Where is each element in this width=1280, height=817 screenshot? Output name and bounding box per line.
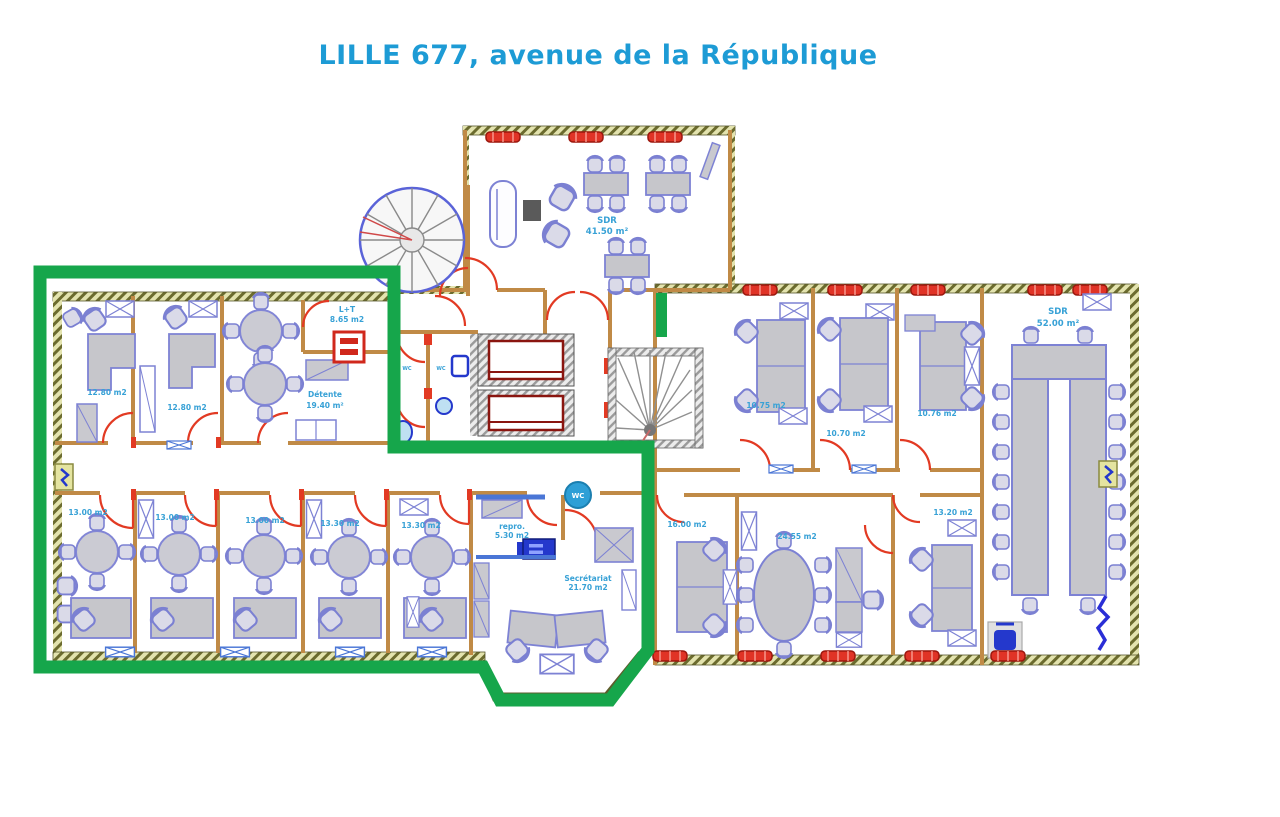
label-repro-name: repro. (499, 522, 525, 531)
floor-plan-page: LILLE 677, avenue de la République (0, 0, 1280, 817)
label-wc-2: WC (436, 366, 446, 372)
floor-plan: WC SDR 41.50 m² 12.80 m2 12.80 m2 Détent… (0, 0, 1280, 817)
emergency-exit-icon (55, 464, 73, 490)
label-repro-area: 5.30 m2 (495, 531, 529, 540)
coffee-table-icon (523, 200, 541, 221)
label-office-nw-2: 12.80 m2 (167, 403, 206, 412)
elevator-shafts-icon (470, 334, 574, 436)
label-office-ne-3: 10.76 m2 (917, 409, 956, 418)
page-title: LILLE 677, avenue de la République (0, 40, 1196, 71)
room-office-nw-1 (61, 301, 135, 442)
label-office-se-1: 16.00 m2 (667, 520, 706, 529)
sink-icon (452, 356, 468, 376)
conference-table-icon (1012, 345, 1106, 595)
label-office-sw-5: 13.30 m2 (401, 521, 440, 530)
room-office-sw-5 (394, 499, 470, 638)
label-meeting-north-area: 41.50 m² (586, 227, 629, 237)
label-office-ne-1: 10.75 m2 (746, 401, 785, 410)
room-office-nw-2 (140, 301, 217, 432)
label-secretariat-name: Secrétariat (564, 574, 612, 583)
label-wc-1: WC (402, 366, 412, 372)
room-meeting-north (486, 132, 720, 294)
label-office-sw-2: 13.00 m2 (155, 513, 194, 522)
label-meeting-north-name: SDR (597, 216, 617, 226)
label-meeting-east-area: 52.00 m² (1037, 319, 1080, 329)
label-office-nw-1: 12.80 m2 (87, 388, 126, 397)
label-secretariat-area: 21.70 m2 (568, 583, 607, 592)
oval-table-icon (754, 549, 814, 641)
wc-stamp-label: WC (572, 492, 585, 500)
room-office-ne-2 (814, 285, 894, 422)
room-office-se-3 (906, 520, 976, 646)
electrical-panel-icon (334, 332, 364, 362)
label-office-sw-4: 13.30 m2 (320, 519, 359, 528)
desk-icon (169, 334, 215, 388)
room-office-sw-1 (58, 514, 135, 638)
label-lounge-name: Détente (308, 390, 342, 399)
room-office-se-1 (677, 534, 737, 640)
label-office-sw-3: 13.00 m2 (245, 516, 284, 525)
emergency-exit-icon (1099, 461, 1117, 487)
room-meeting-east (988, 285, 1125, 658)
room-office-sw-3 (226, 518, 302, 638)
label-meeting-east-name: SDR (1048, 307, 1068, 317)
label-office-ne-2: 10.70 m2 (826, 429, 865, 438)
plant-icon (1098, 596, 1108, 650)
sofa-icon (490, 181, 516, 247)
label-lt-area: 8.65 m2 (330, 315, 364, 324)
flipchart-icon (700, 143, 720, 180)
label-office-se-3: 13.20 m2 (933, 508, 972, 517)
label-lounge-area: 19.40 m² (306, 401, 343, 410)
label-office-se-2: 24.55 m2 (777, 532, 816, 541)
toilet-icon (436, 398, 452, 414)
wc-stamp-icon: WC (565, 482, 591, 508)
room-office-ne-3 (905, 285, 988, 414)
partition-highlight (656, 293, 667, 337)
desk-icon (88, 334, 135, 390)
label-lt-name: L+T (339, 305, 356, 314)
label-office-sw-1: 13.00 m2 (68, 508, 107, 517)
